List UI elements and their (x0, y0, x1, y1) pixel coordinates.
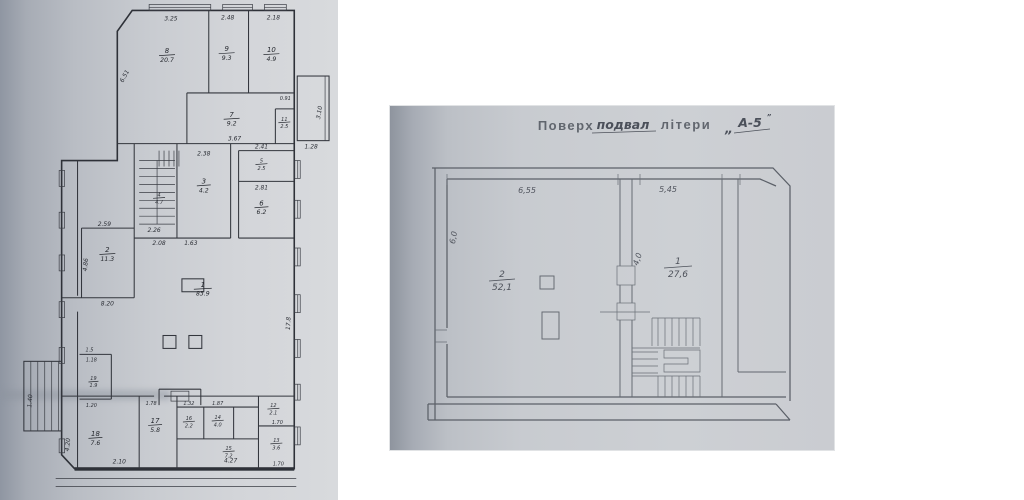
plan-header: Поверх подвал літери „ А-5 ” (538, 113, 772, 136)
room-9-area: 9.3 (222, 55, 232, 62)
left-plan-annex (297, 76, 329, 141)
dim-closet19-1: 1.5 (86, 347, 94, 353)
right-floor-plan-scan: Поверх подвал літери „ А-5 ” (390, 106, 834, 450)
dim-room5-top: 2.41 (255, 144, 268, 151)
room-10-number: 10 (267, 46, 276, 54)
dim-left-wall: 4.20 (64, 438, 72, 452)
room-19-area: 1.9 (89, 383, 97, 389)
dim-closet19-3: 1.20 (86, 403, 97, 409)
left-plan-top-windows (149, 4, 286, 10)
room-14-area: 4.0 (214, 422, 222, 428)
dim-room12-bottom: 1.70 (272, 420, 283, 426)
dim-room3-top: 2.38 (197, 151, 210, 158)
room-17-area: 5.8 (150, 427, 160, 434)
header-hand-basement: подвал (597, 117, 650, 132)
room-11-area: 2.5 (280, 124, 288, 130)
room-8-number: 8 (165, 47, 170, 55)
room-3-number: 3 (202, 177, 206, 185)
dim-entrance-steps: 1.40 (26, 394, 34, 408)
room-7-area: 9.2 (227, 121, 237, 128)
right-plan-room-labels: 2 52,1 1 27,6 (489, 257, 692, 293)
header-stamp-floor: Поверх (538, 118, 594, 133)
room-1-area: 83.9 (196, 291, 210, 298)
dim-closet: 0.91 (280, 96, 291, 102)
dim-room2-bottom: 8.20 (101, 301, 114, 308)
dim-hall-top-1: 2.08 (152, 240, 165, 247)
room-10-area: 4.9 (266, 56, 276, 63)
room-13-area: 3.6 (272, 445, 280, 451)
dim-hall-top-2: 1.63 (184, 240, 197, 247)
header-stamp-letter: літери (661, 117, 711, 132)
room-1-area: 27,6 (668, 270, 688, 280)
dim-room16-top: 1.32 (183, 401, 194, 407)
room-5-area: 2.5 (257, 166, 265, 172)
dim-top-left-span: 6,55 (518, 186, 536, 195)
dim-right-wall: 17.8 (285, 316, 293, 330)
left-floor-plan-drawing: 820.7 99.3 104.9 79.2 112.5 52.5 66.2 34… (0, 0, 338, 500)
left-plan-outer-walls (56, 10, 297, 486)
header-hand-letter-a5: А-5 (737, 115, 762, 130)
room-16-area: 2.2 (185, 423, 193, 429)
dim-room17-top: 1.78 (146, 401, 157, 407)
left-plan-staircase (139, 151, 179, 225)
dim-annex-height: 3.10 (315, 105, 324, 119)
room-18-area: 7.6 (91, 440, 101, 447)
room-1-number: 1 (675, 257, 681, 267)
dim-top-3: 2.18 (267, 14, 280, 21)
room-18-number: 18 (91, 430, 100, 438)
room-2-area: 11.3 (101, 256, 115, 263)
right-floor-plan-drawing: Поверх подвал літери „ А-5 ” (390, 106, 834, 450)
room-17-number: 17 (151, 417, 160, 425)
room-4-number: 4 (157, 192, 160, 198)
dim-middle-wall: 4,0 (631, 252, 643, 267)
header-quote: „ (724, 121, 733, 136)
right-plan-staircase (632, 318, 700, 397)
room-1-number: 1 (201, 281, 205, 289)
dim-closet19-2: 1.18 (86, 357, 97, 363)
room-8-area: 20.7 (160, 57, 174, 64)
dim-room2-top: 2.59 (98, 221, 111, 228)
room-4-area: 4.7 (155, 200, 164, 206)
dim-room18-bottom: 2.10 (113, 459, 126, 466)
left-plan-room-labels: 820.7 99.3 104.9 79.2 112.5 52.5 66.2 34… (88, 45, 290, 459)
room-12-area: 2.1 (269, 411, 277, 417)
dim-room2-left: 4.86 (82, 258, 90, 272)
dim-room13-bottom: 1.70 (273, 462, 284, 468)
left-plan-right-windows (295, 161, 300, 445)
right-plan-outer-walls (428, 168, 790, 420)
dim-slant-left: 6.51 (119, 69, 131, 84)
room-6-number: 6 (259, 199, 264, 207)
dim-annex-bottom: 1.28 (305, 144, 318, 151)
dim-room6-top: 2.81 (255, 184, 268, 191)
left-plan-interior-walls (62, 10, 295, 468)
right-plan-dimension-labels: 6,55 5,45 6,0 4,0 (448, 185, 677, 267)
room-7-number: 7 (229, 111, 234, 119)
room-2-number: 2 (105, 246, 109, 254)
room-2-area: 52,1 (492, 283, 512, 293)
dim-room15-bottom: 4.27 (224, 458, 237, 465)
dim-stair-bottom: 2.26 (147, 227, 160, 234)
room-2-number: 2 (499, 270, 505, 280)
right-plan-columns (540, 276, 559, 339)
dim-top-right-span: 5,45 (659, 185, 677, 194)
dim-top-2: 2.48 (221, 14, 234, 21)
room-3-area: 4.2 (199, 187, 209, 194)
dim-room14-top: 1.87 (212, 401, 224, 407)
dim-top-1: 3.25 (164, 15, 177, 22)
scanned-floorplans-page: 820.7 99.3 104.9 79.2 112.5 52.5 66.2 34… (0, 0, 1024, 500)
dim-left-wall: 6,0 (448, 231, 459, 245)
left-plan-dimension-labels: 3.25 2.48 2.18 6.51 3.10 1.28 0.91 3.67 … (26, 14, 324, 467)
room-5-number: 5 (260, 159, 263, 165)
left-floor-plan-scan: 820.7 99.3 104.9 79.2 112.5 52.5 66.2 34… (0, 0, 338, 500)
room-6-area: 6.2 (257, 209, 267, 216)
room-9-number: 9 (224, 45, 228, 53)
header-superscript: ” (767, 113, 772, 121)
dim-room7-bottom: 3.67 (228, 136, 241, 143)
